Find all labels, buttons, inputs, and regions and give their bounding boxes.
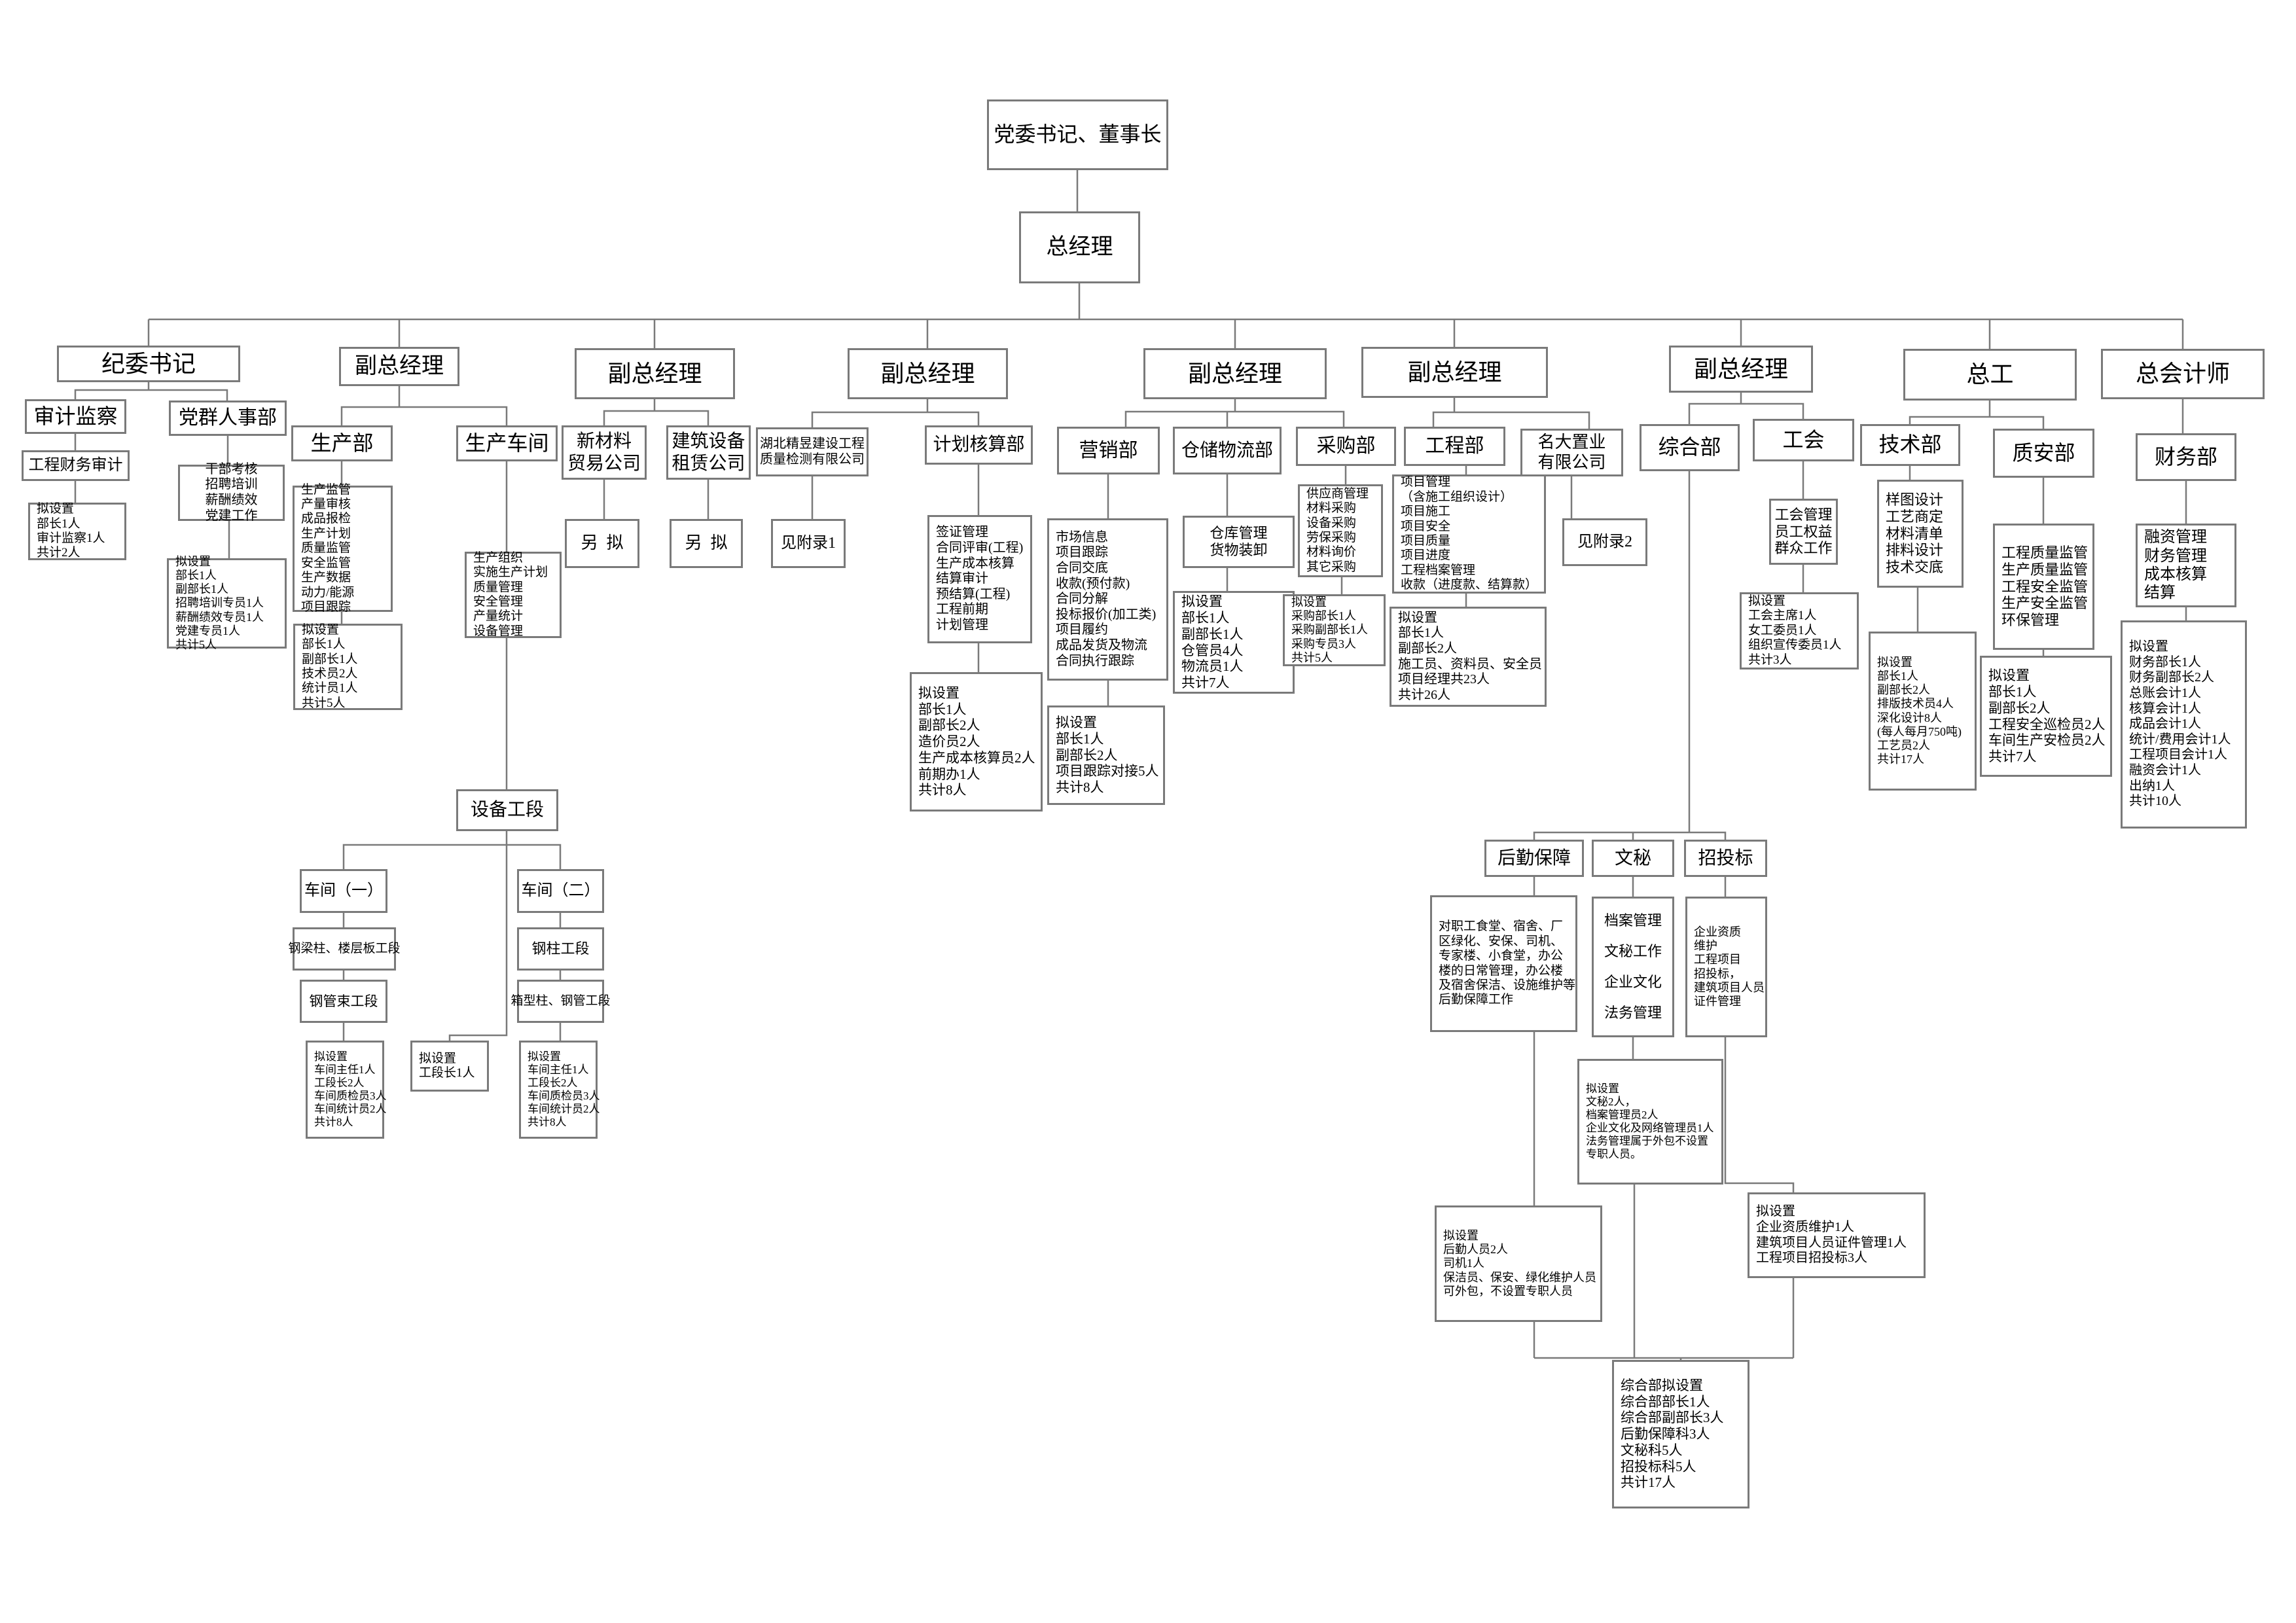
- node-production-dept: 生产部: [291, 425, 393, 461]
- node-planning-staffing-label: 部长1人: [918, 702, 967, 718]
- node-general-affairs-totals-label: 综合部副部长3人: [1621, 1410, 1724, 1426]
- node-bidding-staffing: 拟设置企业资质维护1人建筑项目人员证件管理1人工程项目招投标3人: [1748, 1192, 1926, 1278]
- node-secretarial-duties-label: 文秘工作: [1604, 943, 1662, 960]
- node-quality-safety-duties-label: 生产质量监管: [2001, 562, 2088, 579]
- node-bidding-staffing-label: 拟设置: [1756, 1204, 1795, 1220]
- node-party-hr-duties-label: 薪酬绩效: [206, 493, 258, 508]
- node-workshop-2-staffing: 拟设置车间主任1人工段长2人车间质检员3人车间统计员2人共计8人: [519, 1041, 598, 1139]
- node-party-hr-staffing-label: 拟设置: [175, 555, 211, 569]
- connector-line: [450, 831, 507, 1041]
- connector-lines: [0, 0, 2296, 1623]
- node-marketing-staffing-label: 部长1人: [1056, 731, 1104, 747]
- node-bidding: 招投标: [1684, 840, 1767, 877]
- node-workshop-duties-label: 产量统计: [473, 609, 523, 624]
- node-technology-staffing-label: 拟设置: [1877, 656, 1912, 669]
- node-audit-project-finance-label: 工程财务审计: [29, 456, 123, 474]
- node-party-hr-duties-label: 党建工作: [206, 508, 258, 524]
- node-party-hr-duties: 干部考核招聘培训薪酬绩效党建工作: [178, 465, 285, 521]
- node-finance-staffing-label: 出纳1人: [2129, 779, 2175, 794]
- node-planning-staffing: 拟设置部长1人副部长2人造价员2人生产成本核算员2人前期办1人共计8人: [910, 672, 1043, 811]
- node-finance-staffing-label: 成品会计1人: [2129, 717, 2201, 732]
- node-marketing-duties: 市场信息项目跟踪合同交底收款(预付款)合同分解投标报价(加工类)项目履约成品发货…: [1047, 518, 1168, 681]
- node-workshop-1-staffing-label: 共计8人: [314, 1116, 353, 1129]
- node-engineering-staffing: 拟设置部长1人副部长2人施工员、资料员、安全员项目经理共23人共计26人: [1390, 607, 1547, 707]
- node-section-steel-tube-bundle-label: 钢管束工段: [310, 993, 378, 1010]
- node-marketing-staffing-label: 共计8人: [1056, 779, 1104, 796]
- node-secretarial-duties-label: 法务管理: [1604, 1005, 1662, 1022]
- node-mingda-real-estate: 名大置业有限公司: [1520, 429, 1623, 476]
- node-purchasing-staffing: 拟设置采购部长1人采购副部长1人采购专员3人共计5人: [1283, 594, 1386, 666]
- node-engineering-staffing-label: 拟设置: [1398, 611, 1437, 626]
- node-vice-gm-2: 副总经理: [575, 348, 735, 399]
- node-technology-staffing-label: 副部长2人: [1877, 683, 1930, 697]
- node-audit-supervision-label: 审计监察: [33, 404, 117, 429]
- node-audit-staffing-label: 部长1人: [37, 517, 81, 531]
- node-workshop-1-staffing-label: 车间主任1人: [314, 1063, 376, 1077]
- node-audit-staffing: 拟设置部长1人审计监察1人共计2人: [28, 503, 126, 560]
- node-purchasing-dept-label: 采购部: [1317, 435, 1376, 457]
- node-logistics-staffing: 拟设置后勤人员2人司机1人保洁员、保安、绿化维护人员可外包，不设置专职人员: [1435, 1205, 1602, 1322]
- node-production-staffing-label: 副部长1人: [302, 652, 358, 667]
- node-bidding-duties-label: 招投标，: [1694, 967, 1741, 981]
- node-finance-staffing-label: 融资会计1人: [2129, 763, 2201, 779]
- node-logistics-staffing-label: 保洁员、保安、绿化维护人员: [1443, 1271, 1596, 1285]
- node-production-workshop-label: 生产车间: [465, 431, 548, 456]
- node-marketing-duties-label: 市场信息: [1056, 530, 1108, 546]
- node-general-affairs-dept: 综合部: [1640, 424, 1740, 471]
- node-section-chief-staffing-label: 工段长1人: [419, 1066, 475, 1080]
- node-section-box-column-tube-label: 箱型柱、钢管工段: [511, 994, 611, 1008]
- node-vice-gm-6-label: 副总经理: [1694, 355, 1788, 383]
- node-section-beam-column-slab-label: 钢梁柱、楼层板工段: [289, 942, 401, 956]
- node-hubei-jingyu-testing-label: 质量检测有限公司: [760, 452, 865, 468]
- node-technology-duties-label: 技术交底: [1886, 559, 1943, 576]
- node-warehouse-staffing-label: 仓管员4人: [1181, 643, 1244, 659]
- node-purchasing-duties-label: 材料询价: [1306, 545, 1356, 560]
- node-vice-gm-5-label: 副总经理: [1407, 359, 1501, 386]
- node-technology-duties-label: 工艺商定: [1886, 508, 1943, 526]
- connector-line: [1534, 832, 1725, 840]
- node-new-material-trading-label: 贸易公司: [567, 453, 641, 474]
- node-purchasing-duties-label: 劳保采购: [1306, 531, 1356, 545]
- node-secretarial-duties: 档案管理文秘工作企业文化法务管理: [1592, 897, 1674, 1037]
- node-engineering-dept-label: 工程部: [1426, 435, 1484, 457]
- node-union-duties-label: 群众工作: [1774, 540, 1832, 557]
- node-bidding-staffing-label: 建筑项目人员证件管理1人: [1756, 1236, 1907, 1251]
- node-secretarial-duties-label: 企业文化: [1604, 974, 1662, 991]
- node-planning-staffing-label: 副部长2人: [918, 717, 980, 734]
- node-planning-duties-label: 工程前期: [936, 602, 988, 618]
- node-quality-safety-staffing-label: 部长1人: [1988, 684, 2037, 700]
- node-discipline-secretary-label: 纪委书记: [101, 350, 196, 378]
- node-production-staffing-label: 统计员1人: [302, 681, 358, 696]
- node-secretarial-staffing-label: 文秘2人，: [1586, 1096, 1636, 1109]
- node-section-box-column-tube: 箱型柱、钢管工段: [517, 980, 604, 1023]
- node-equipment-section-label: 设备工段: [471, 799, 544, 821]
- node-technology-duties-label: 材料清单: [1886, 526, 1943, 543]
- node-secretarial-duties-label: 档案管理: [1604, 912, 1662, 929]
- node-engineering-duties: 项目管理（含施工组织设计）项目施工项目安全项目质量项目进度工程档案管理收款（进度…: [1392, 474, 1546, 594]
- node-finance-staffing-label: 总账会计1人: [2129, 686, 2201, 702]
- node-finance-staffing-label: 统计/费用会计1人: [2129, 732, 2231, 748]
- node-logistics-staffing-label: 可外包，不设置专职人员: [1443, 1285, 1573, 1298]
- node-party-secretary-chairman-label: 党委书记、董事长: [994, 122, 1161, 147]
- node-party-hr-dept: 党群人事部: [169, 401, 287, 436]
- node-logistics-duties-label: 楼的日常管理，办公楼: [1439, 964, 1563, 978]
- node-party-hr-staffing-label: 共计5人: [175, 638, 217, 652]
- node-section-chief-staffing-label: 拟设置: [419, 1052, 456, 1066]
- node-production-duties-label: 生产数据: [301, 571, 351, 585]
- node-purchasing-duties-label: 材料采购: [1306, 501, 1356, 516]
- node-marketing-duties-label: 合同分解: [1056, 592, 1108, 607]
- node-production-staffing-label: 技术员2人: [302, 667, 358, 681]
- node-party-hr-staffing-label: 副部长1人: [175, 582, 228, 596]
- node-marketing-duties-label: 合同交底: [1056, 561, 1108, 577]
- node-equipment-section: 设备工段: [456, 789, 558, 831]
- node-production-duties-label: 生产计划: [301, 527, 351, 541]
- node-tbd-1: 另 拟: [565, 519, 639, 568]
- node-vice-gm-4: 副总经理: [1143, 348, 1327, 399]
- node-warehouse-duties-label: 仓库管理: [1210, 525, 1267, 542]
- node-finance-staffing-label: 共计10人: [2129, 794, 2181, 810]
- node-quality-safety-dept: 质安部: [1993, 429, 2094, 478]
- node-technology-staffing-label: 排版技术员4人: [1877, 697, 1954, 711]
- node-planning-accounting-dept-label: 计划核算部: [933, 434, 1024, 455]
- node-quality-safety-staffing-label: 工程安全巡检员2人: [1988, 717, 2106, 733]
- node-purchasing-duties-label: 其它采购: [1306, 560, 1356, 575]
- node-mingda-real-estate-label: 有限公司: [1537, 453, 1605, 473]
- node-technology-duties: 样图设计工艺商定材料清单排料设计技术交底: [1877, 480, 1964, 588]
- node-chief-accountant-label: 总会计师: [2136, 360, 2230, 387]
- node-new-material-trading: 新材料贸易公司: [562, 425, 647, 480]
- node-workshop-2-staffing-label: 车间统计员2人: [528, 1103, 600, 1116]
- node-finance-duties-label: 财务管理: [2144, 547, 2207, 565]
- node-bidding-duties-label: 证件管理: [1694, 995, 1741, 1008]
- node-marketing-duties-label: 项目履约: [1056, 622, 1108, 638]
- node-marketing-dept-label: 营销部: [1079, 439, 1138, 462]
- node-party-hr-duties-label: 干部考核: [206, 462, 258, 478]
- node-warehouse-staffing-label: 部长1人: [1181, 610, 1230, 626]
- node-planning-duties-label: 生产成本核算: [936, 556, 1014, 572]
- node-logistics-staffing-label: 司机1人: [1443, 1257, 1484, 1270]
- node-hubei-jingyu-testing: 湖北精昱建设工程质量检测有限公司: [756, 427, 869, 476]
- node-marketing-staffing-label: 项目跟踪对接5人: [1056, 763, 1159, 779]
- node-bidding-duties-label: 维护: [1694, 939, 1717, 953]
- node-union-staffing-label: 工会主席1人: [1748, 609, 1817, 623]
- node-finance-dept: 财务部: [2136, 433, 2236, 481]
- node-marketing-duties-label: 合同执行跟踪: [1056, 654, 1134, 669]
- node-purchasing-staffing-label: 采购专员3人: [1291, 637, 1356, 651]
- node-vice-gm-1-label: 副总经理: [355, 353, 444, 380]
- node-tbd-1-label: 另 拟: [581, 533, 623, 554]
- node-general-affairs-totals-label: 后勤保障科3人: [1621, 1426, 1710, 1442]
- node-construction-equipment-leasing-label: 建筑设备: [672, 431, 745, 452]
- node-party-hr-staffing-label: 部长1人: [175, 569, 217, 582]
- node-workshop-2-staffing-label: 车间质检员3人: [528, 1090, 600, 1103]
- node-see-appendix-2: 见附录2: [1562, 518, 1647, 566]
- node-general-affairs-dept-label: 综合部: [1658, 435, 1721, 460]
- node-warehouse-logistics-dept: 仓储物流部: [1173, 427, 1282, 474]
- node-technology-duties-label: 样图设计: [1886, 491, 1943, 508]
- node-technology-dept-label: 技术部: [1878, 433, 1941, 457]
- node-quality-safety-staffing: 拟设置部长1人副部长2人工程安全巡检员2人车间生产安检员2人共计7人: [1980, 656, 2112, 777]
- node-finance-duties-label: 融资管理: [2144, 528, 2207, 546]
- node-production-staffing: 拟设置部长1人副部长1人技术员2人统计员1人共计5人: [293, 624, 403, 710]
- node-quality-safety-duties-label: 生产安全监管: [2001, 595, 2088, 612]
- node-general-manager-label: 总经理: [1047, 234, 1113, 260]
- node-workshop-1-staffing-label: 车间统计员2人: [314, 1103, 387, 1116]
- node-secretarial-label: 文秘: [1615, 847, 1651, 869]
- node-party-hr-duties-label: 招聘培训: [206, 477, 258, 493]
- node-production-duties-label: 项目跟踪: [301, 600, 351, 615]
- node-labor-union: 工会: [1753, 419, 1854, 461]
- node-union-duties-label: 员工权益: [1774, 524, 1832, 541]
- node-union-duties-label: 工会管理: [1774, 507, 1832, 524]
- node-technology-staffing: 拟设置部长1人副部长2人排版技术员4人深化设计8人(每人每月750吨)工艺员2人…: [1869, 632, 1977, 791]
- node-production-staffing-label: 拟设置: [302, 623, 339, 637]
- node-warehouse-staffing-label: 副部长1人: [1181, 626, 1244, 643]
- node-warehouse-staffing-label: 拟设置: [1181, 594, 1223, 610]
- node-chief-engineer-label: 总工: [1966, 361, 2013, 388]
- node-secretarial-staffing-label: 法务管理属于外包不设置: [1586, 1135, 1708, 1148]
- node-marketing-duties-label: 收款(预付款): [1056, 577, 1130, 592]
- node-section-chief-staffing: 拟设置工段长1人: [410, 1041, 489, 1092]
- node-bidding-duties-label: 建筑项目人员: [1694, 981, 1765, 995]
- node-workshop-2-staffing-label: 共计8人: [528, 1116, 567, 1129]
- node-quality-safety-duties: 工程质量监管生产质量监管工程安全监管生产安全监管环保管理: [1993, 524, 2094, 650]
- node-technology-dept: 技术部: [1860, 424, 1960, 466]
- node-logistics-staffing-label: 拟设置: [1443, 1229, 1479, 1243]
- org-chart-canvas: 党委书记、董事长总经理纪委书记副总经理副总经理副总经理副总经理副总经理副总经理总…: [0, 0, 2296, 1623]
- node-union-staffing-label: 拟设置: [1748, 594, 1785, 609]
- node-secretarial: 文秘: [1592, 840, 1674, 877]
- node-production-duties-label: 生产监管: [301, 483, 351, 497]
- node-bidding-duties-label: 企业资质: [1694, 925, 1741, 939]
- node-purchasing-staffing-label: 拟设置: [1291, 596, 1327, 609]
- node-logistics-staffing-label: 后勤人员2人: [1443, 1243, 1508, 1257]
- node-workshop-2: 车间（二）: [517, 869, 604, 913]
- node-purchasing-duties: 供应商管理材料采购设备采购劳保采购材料询价其它采购: [1298, 484, 1383, 577]
- node-general-affairs-totals: 综合部拟设置综合部部长1人综合部副部长3人后勤保障科3人文秘科5人招投标科5人共…: [1612, 1360, 1749, 1508]
- node-logistics-duties-label: 对职工食堂、宿舍、厂: [1439, 919, 1563, 934]
- node-marketing-dept: 营销部: [1057, 427, 1160, 474]
- node-secretarial-staffing-label: 专职人员。: [1586, 1148, 1641, 1161]
- node-finance-staffing-label: 财务部长1人: [2129, 655, 2201, 671]
- node-finance-staffing: 拟设置财务部长1人财务副部长2人总账会计1人核算会计1人成品会计1人统计/费用会…: [2121, 620, 2247, 829]
- node-mingda-real-estate-label: 名大置业: [1537, 433, 1605, 453]
- node-general-manager: 总经理: [1019, 211, 1140, 283]
- connector-line: [1725, 1037, 1793, 1192]
- connector-line: [1126, 412, 1344, 427]
- node-technology-staffing-label: 共计17人: [1877, 753, 1924, 766]
- node-tbd-2: 另 拟: [670, 519, 743, 568]
- node-warehouse-staffing-label: 物流员1人: [1181, 658, 1244, 675]
- node-planning-duties-label: 结算审计: [936, 571, 988, 587]
- node-warehouse-duties: 仓库管理货物装卸: [1183, 516, 1295, 568]
- node-audit-project-finance: 工程财务审计: [22, 450, 130, 481]
- node-bidding-duties: 企业资质维护工程项目招投标，建筑项目人员证件管理: [1685, 897, 1767, 1037]
- node-technology-duties-label: 排料设计: [1886, 542, 1943, 559]
- node-engineering-duties-label: 收款（进度款、结算款）: [1401, 578, 1537, 592]
- node-warehouse-staffing-label: 共计7人: [1181, 675, 1230, 691]
- node-engineering-staffing-label: 施工员、资料员、安全员: [1398, 657, 1542, 673]
- node-union-staffing-label: 组织宣传委员1人: [1748, 638, 1842, 652]
- connector-line: [604, 411, 708, 425]
- node-union-duties: 工会管理员工权益群众工作: [1769, 499, 1838, 565]
- node-general-affairs-totals-label: 文秘科5人: [1621, 1442, 1683, 1459]
- node-engineering-staffing-label: 共计26人: [1398, 688, 1450, 704]
- node-engineering-duties-label: 项目施工: [1401, 505, 1450, 519]
- node-quality-safety-staffing-label: 共计7人: [1988, 749, 2037, 765]
- node-marketing-staffing-label: 副部长2人: [1056, 747, 1118, 764]
- node-construction-equipment-leasing: 建筑设备租赁公司: [666, 425, 751, 480]
- node-planning-duties-label: 合同评审(工程): [936, 541, 1023, 556]
- node-production-duties-label: 质量监管: [301, 541, 351, 556]
- connector-line: [342, 407, 507, 425]
- node-party-hr-staffing: 拟设置部长1人副部长1人招聘培训专员1人薪酬绩效专员1人党建专员1人共计5人: [167, 558, 287, 649]
- node-workshop-1-staffing: 拟设置车间主任1人工段长2人车间质检员3人车间统计员2人共计8人: [306, 1041, 384, 1139]
- node-logistics-duties-label: 专家楼、小食堂，办公: [1439, 949, 1563, 963]
- node-logistics-support-label: 后勤保障: [1498, 847, 1571, 869]
- node-finance-duties: 融资管理财务管理成本核算结算: [2136, 524, 2236, 607]
- node-engineering-staffing-label: 部长1人: [1398, 626, 1444, 641]
- node-quality-safety-duties-label: 工程质量监管: [2001, 544, 2088, 562]
- node-engineering-duties-label: 项目质量: [1401, 534, 1450, 548]
- node-purchasing-duties-label: 供应商管理: [1306, 487, 1369, 501]
- node-new-material-trading-label: 新材料: [577, 431, 632, 452]
- node-marketing-staffing-label: 拟设置: [1056, 715, 1097, 731]
- node-technology-staffing-label: 深化设计8人: [1877, 711, 1942, 725]
- node-bidding-duties-label: 工程项目: [1694, 953, 1741, 967]
- node-tbd-2-label: 另 拟: [685, 533, 727, 554]
- node-warehouse-staffing: 拟设置部长1人副部长1人仓管员4人物流员1人共计7人: [1173, 591, 1295, 694]
- node-secretarial-staffing-label: 拟设置: [1586, 1082, 1619, 1096]
- node-union-staffing-label: 女工委员1人: [1748, 624, 1817, 638]
- node-marketing-duties-label: 投标报价(加工类): [1056, 607, 1156, 623]
- node-workshop-2-staffing-label: 工段长2人: [528, 1077, 578, 1090]
- node-workshop-1-staffing-label: 工段长2人: [314, 1077, 365, 1090]
- node-warehouse-duties-label: 货物装卸: [1210, 542, 1267, 559]
- node-marketing-duties-label: 项目跟踪: [1056, 545, 1108, 561]
- node-general-affairs-totals-label: 综合部拟设置: [1621, 1378, 1703, 1394]
- node-bidding-staffing-label: 工程项目招投标3人: [1756, 1251, 1867, 1266]
- node-workshop-2-staffing-label: 车间主任1人: [528, 1063, 589, 1077]
- node-bidding-staffing-label: 企业资质维护1人: [1756, 1220, 1854, 1236]
- node-logistics-support: 后勤保障: [1484, 840, 1584, 877]
- node-vice-gm-1: 副总经理: [339, 347, 459, 386]
- node-engineering-duties-label: 项目安全: [1401, 520, 1450, 534]
- node-workshop-duties-label: 实施生产计划: [473, 565, 548, 580]
- node-general-affairs-totals-label: 共计17人: [1621, 1474, 1676, 1491]
- node-union-staffing-label: 共计3人: [1748, 653, 1792, 668]
- node-logistics-duties-label: 及宿舍保洁、设施维护等: [1439, 978, 1575, 993]
- node-labor-union-label: 工会: [1782, 428, 1824, 453]
- node-hubei-jingyu-testing-label: 湖北精昱建设工程: [760, 437, 865, 452]
- node-vice-gm-6: 副总经理: [1669, 346, 1813, 393]
- node-planning-duties-label: 预结算(工程): [936, 587, 1010, 603]
- node-purchasing-duties-label: 设备采购: [1306, 516, 1356, 531]
- node-workshop-1: 车间（一）: [300, 869, 387, 913]
- node-secretarial-staffing-label: 档案管理员2人: [1586, 1109, 1659, 1122]
- node-quality-safety-duties-label: 工程安全监管: [2001, 579, 2088, 596]
- node-see-appendix-1: 见附录1: [771, 519, 846, 568]
- node-production-duties: 生产监管产量审核成品报检生产计划质量监管安全监管生产数据动力/能源项目跟踪: [293, 486, 393, 612]
- node-quality-safety-staffing-label: 副部长2人: [1988, 700, 2051, 717]
- node-purchasing-staffing-label: 采购部长1人: [1291, 609, 1356, 623]
- node-audit-staffing-label: 拟设置: [37, 502, 74, 516]
- node-construction-equipment-leasing-label: 租赁公司: [672, 453, 745, 474]
- node-logistics-duties-label: 区绿化、安保、司机、: [1439, 935, 1563, 949]
- node-workshop-duties-label: 设备管理: [473, 624, 523, 639]
- node-audit-supervision: 审计监察: [25, 399, 126, 434]
- node-marketing-staffing: 拟设置部长1人副部长2人项目跟踪对接5人共计8人: [1047, 705, 1165, 805]
- node-quality-safety-duties-label: 环保管理: [2001, 612, 2059, 629]
- node-vice-gm-3: 副总经理: [848, 348, 1008, 399]
- node-engineering-dept: 工程部: [1404, 427, 1505, 466]
- node-logistics-duties: 对职工食堂、宿舍、厂区绿化、安保、司机、专家楼、小食堂，办公楼的日常管理，办公楼…: [1430, 895, 1577, 1032]
- node-party-hr-staffing-label: 党建专员1人: [175, 624, 240, 638]
- node-engineering-staffing-label: 项目经理共23人: [1398, 672, 1490, 688]
- node-engineering-duties-label: （含施工组织设计）: [1401, 490, 1513, 505]
- node-workshop-duties-label: 安全管理: [473, 595, 523, 609]
- node-finance-duties-label: 成本核算: [2144, 565, 2207, 584]
- node-planning-staffing-label: 拟设置: [918, 685, 960, 702]
- node-technology-staffing-label: 工艺员2人: [1877, 739, 1930, 753]
- node-quality-safety-staffing-label: 车间生产安检员2人: [1988, 732, 2106, 749]
- node-quality-safety-dept-label: 质安部: [2012, 441, 2075, 466]
- node-party-secretary-chairman: 党委书记、董事长: [987, 99, 1168, 170]
- node-section-steel-tube-bundle: 钢管束工段: [300, 980, 387, 1023]
- node-production-staffing-label: 共计5人: [302, 696, 346, 711]
- node-technology-staffing-label: 部长1人: [1877, 669, 1918, 683]
- node-engineering-staffing-label: 副部长2人: [1398, 641, 1457, 657]
- node-purchasing-staffing-label: 采购副部长1人: [1291, 623, 1368, 637]
- node-purchasing-dept: 采购部: [1296, 427, 1396, 466]
- node-planning-duties: 签证管理合同评审(工程)生产成本核算结算审计预结算(工程)工程前期计划管理: [927, 515, 1032, 643]
- node-vice-gm-5: 副总经理: [1361, 347, 1548, 398]
- node-party-hr-staffing-label: 招聘培训专员1人: [175, 596, 264, 610]
- node-finance-staffing-label: 核算会计1人: [2129, 702, 2201, 717]
- node-audit-staffing-label: 审计监察1人: [37, 531, 105, 546]
- node-production-staffing-label: 部长1人: [302, 637, 346, 652]
- node-purchasing-staffing-label: 共计5人: [1291, 651, 1333, 665]
- node-section-steel-column: 钢柱工段: [517, 927, 604, 971]
- node-finance-staffing-label: 拟设置: [2129, 639, 2168, 655]
- node-bidding-label: 招投标: [1698, 847, 1753, 869]
- node-discipline-secretary: 纪委书记: [57, 346, 240, 382]
- node-engineering-duties-label: 项目管理: [1401, 475, 1450, 490]
- node-finance-duties-label: 结算: [2144, 584, 2176, 602]
- node-quality-safety-staffing-label: 拟设置: [1988, 668, 2030, 684]
- node-production-duties-label: 动力/能源: [301, 586, 354, 600]
- node-secretarial-staffing-label: 企业文化及网络管理员1人: [1586, 1122, 1714, 1135]
- node-party-hr-dept-label: 党群人事部: [179, 406, 277, 429]
- node-section-beam-column-slab: 钢梁柱、楼层板工段: [293, 927, 396, 971]
- node-planning-accounting-dept: 计划核算部: [925, 425, 1033, 465]
- node-technology-staffing-label: (每人每月750吨): [1877, 725, 1962, 739]
- node-production-duties-label: 安全监管: [301, 556, 351, 571]
- node-workshop-2-label: 车间（二）: [522, 882, 600, 900]
- node-union-staffing: 拟设置工会主席1人女工委员1人组织宣传委员1人共计3人: [1740, 592, 1859, 669]
- node-production-duties-label: 产量审核: [301, 497, 351, 512]
- node-planning-staffing-label: 造价员2人: [918, 734, 980, 750]
- node-marketing-duties-label: 成品发货及物流: [1056, 638, 1147, 654]
- node-vice-gm-4-label: 副总经理: [1188, 360, 1282, 387]
- node-vice-gm-3-label: 副总经理: [880, 360, 975, 387]
- node-see-appendix-2-label: 见附录2: [1577, 533, 1632, 551]
- node-chief-accountant: 总会计师: [2101, 349, 2265, 399]
- node-workshop-duties-label: 生产组织: [473, 551, 523, 565]
